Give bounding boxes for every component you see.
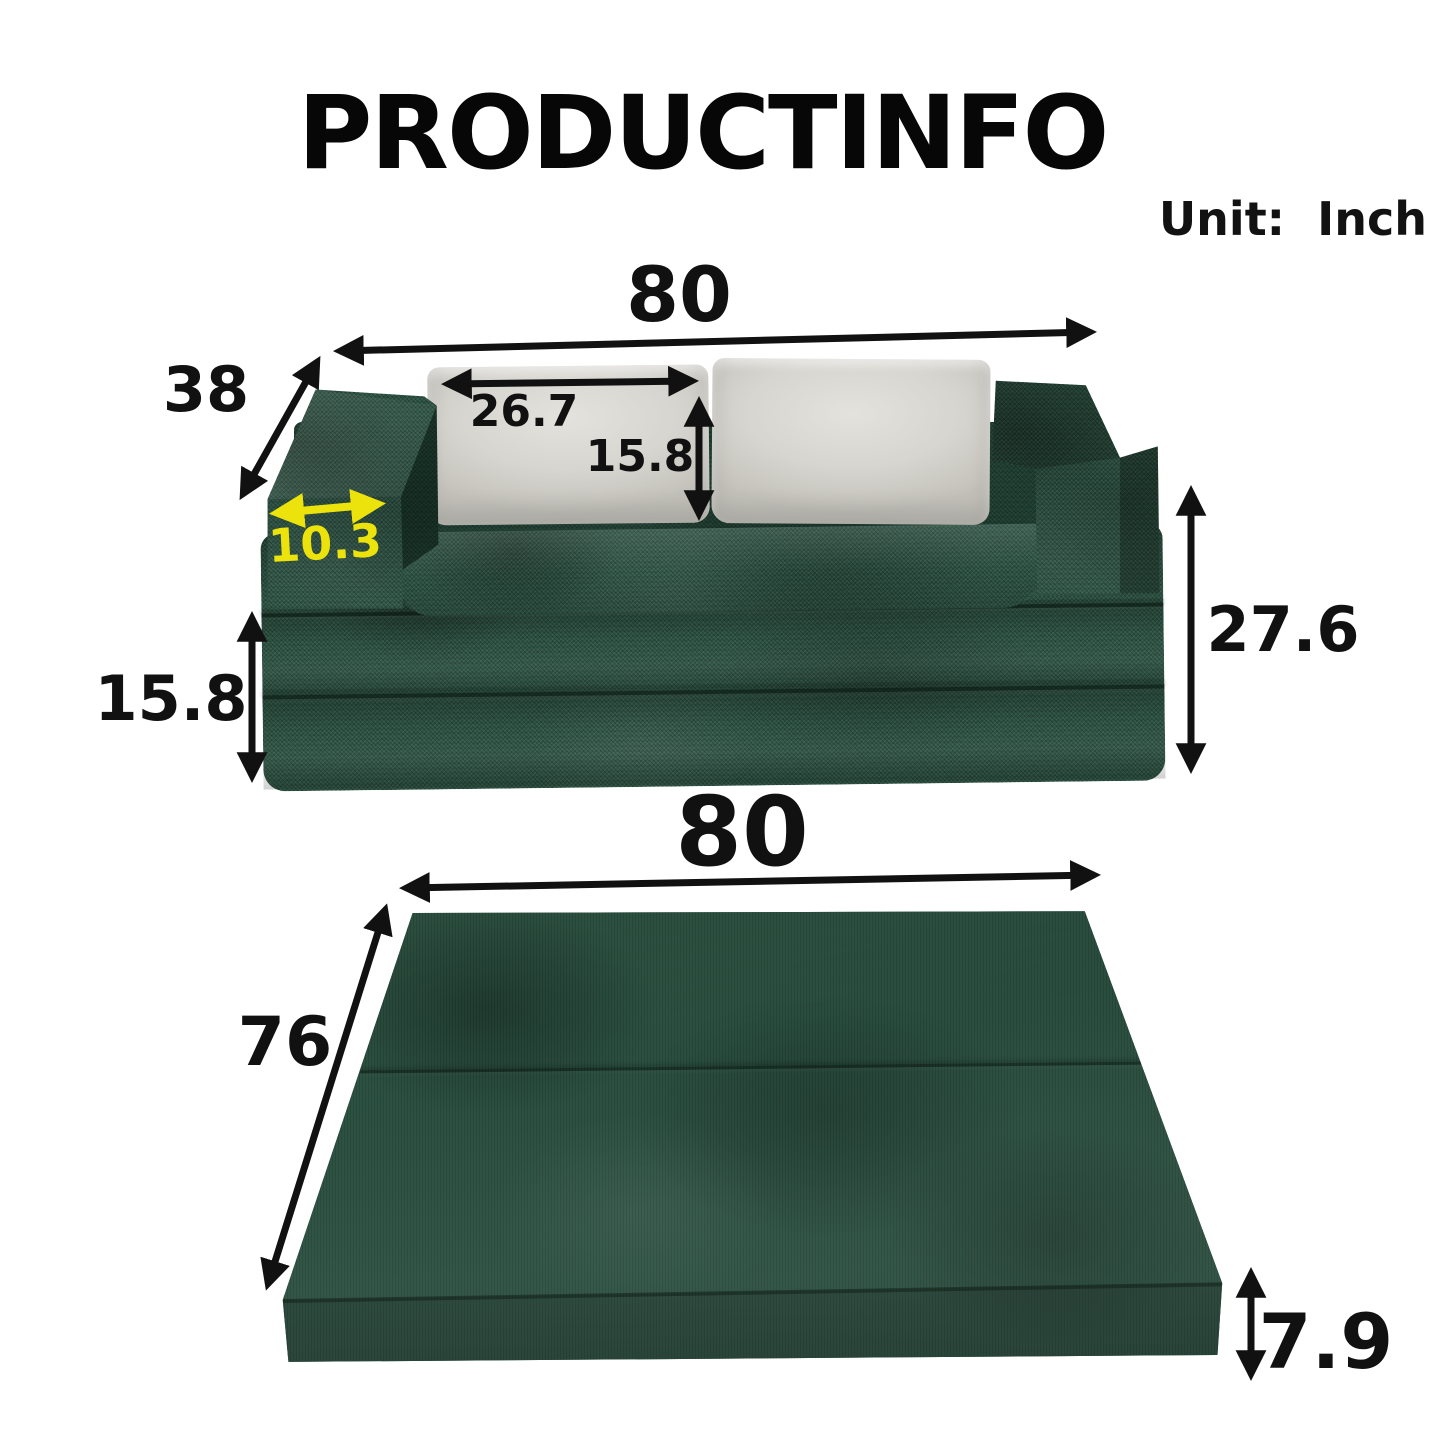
stack-layer-bottom xyxy=(262,688,1165,789)
pillow-height-label: 15.8 xyxy=(586,435,695,479)
pillow-right xyxy=(711,358,990,525)
product-info-sheet: PRODUCTINFO Unit: Inch xyxy=(0,0,1445,1445)
sofa-total-height-label: 27.6 xyxy=(1207,599,1360,661)
sofa-seat-surface xyxy=(397,524,1043,617)
mattress-body xyxy=(278,908,1226,1366)
armrest-width-label: 10.3 xyxy=(267,517,383,569)
sofa-depth-label: 38 xyxy=(163,359,249,421)
mattress-thickness-label: 7.9 xyxy=(1259,1304,1394,1380)
mattress-width-label: 80 xyxy=(675,784,809,880)
page-title: PRODUCTINFO xyxy=(0,74,1405,193)
seat-surface-highlight xyxy=(397,524,1043,617)
mattress-depth-label: 76 xyxy=(238,1009,333,1077)
stack-height-label: 15.8 xyxy=(95,668,248,730)
pillow-width-label: 26.7 xyxy=(470,390,579,434)
stack-layer-middle xyxy=(261,606,1164,693)
sofa-width-label: 80 xyxy=(626,257,732,333)
unit-label: Unit: Inch xyxy=(1159,192,1427,246)
